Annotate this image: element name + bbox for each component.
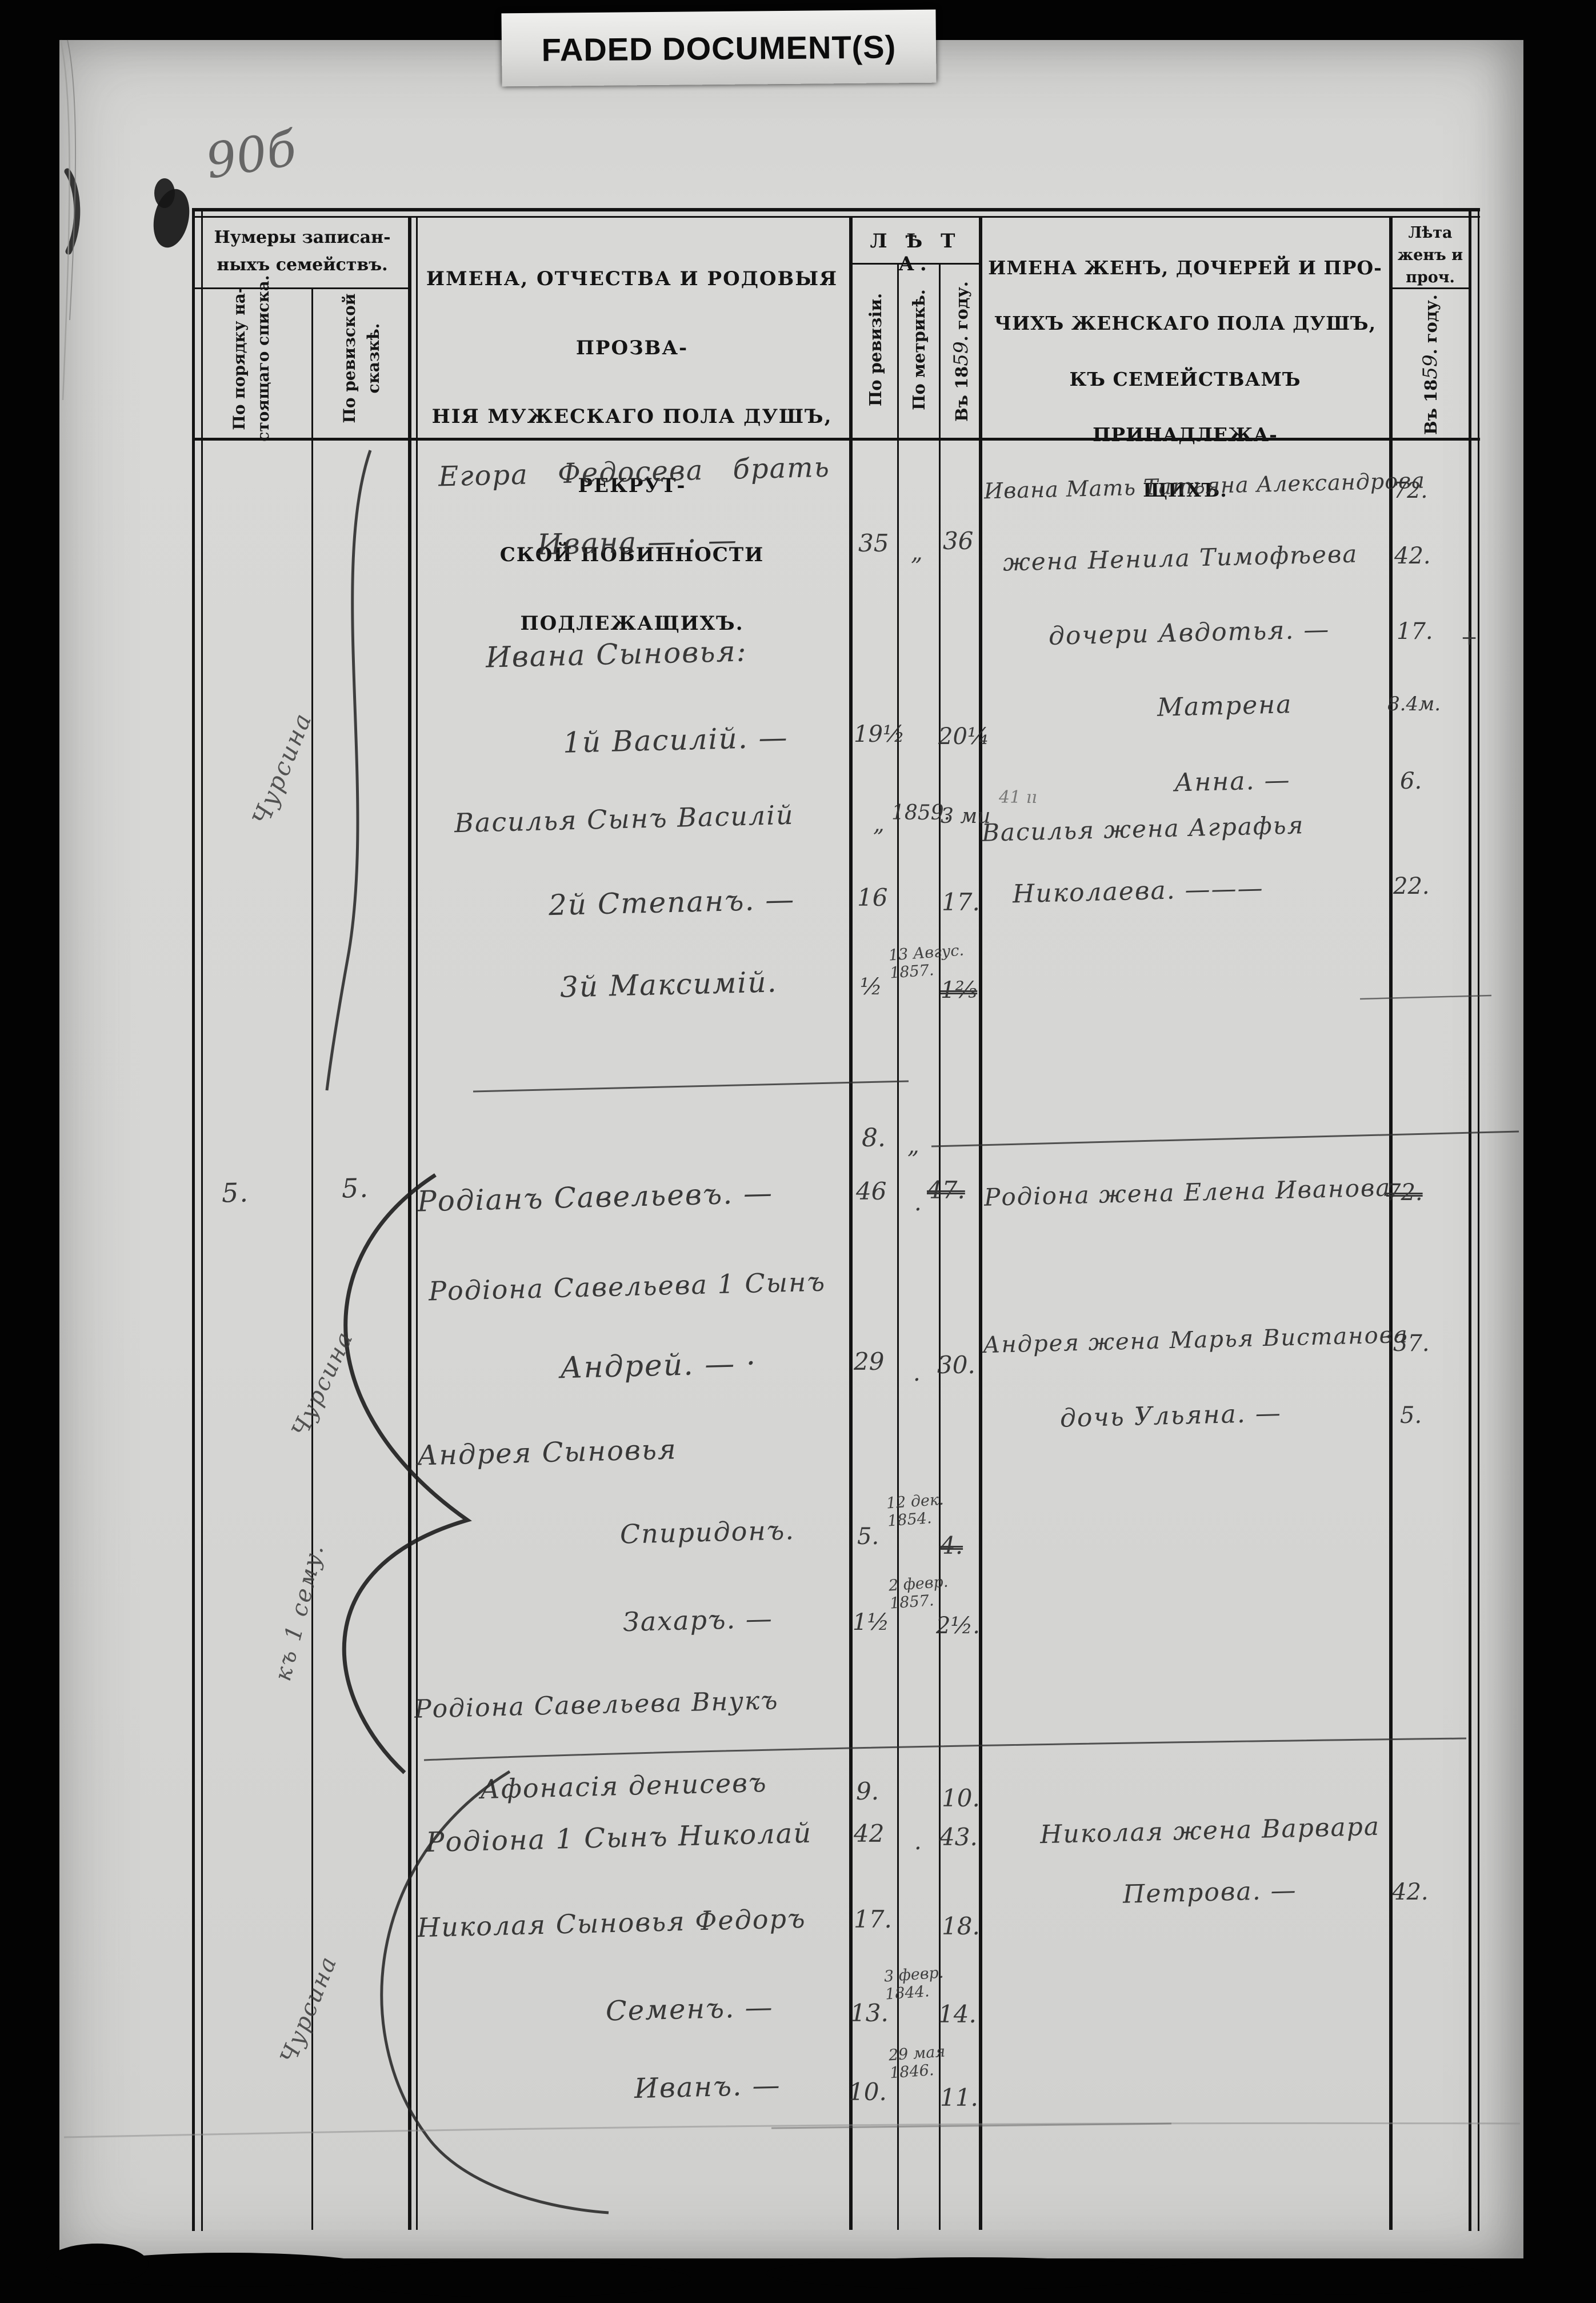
faded-document-label: FADED DOCUMENT(S) xyxy=(501,10,936,87)
age-1859-struck: 1⅔ xyxy=(941,977,977,1003)
male-entry-name: Иванъ. — xyxy=(634,2069,781,2105)
age-by-revision: 9. xyxy=(856,1777,879,1805)
grid-line xyxy=(192,216,1480,218)
female-age: 37. xyxy=(1393,1330,1430,1357)
age-by-revision: 29 xyxy=(854,1348,884,1376)
age-by-revision: ½ xyxy=(860,974,882,1000)
year-suffix: . году. xyxy=(1421,294,1441,354)
female-age: 42. xyxy=(1394,543,1431,569)
grid-line xyxy=(311,289,313,2230)
grid-line xyxy=(408,217,411,2230)
grid-line xyxy=(1389,217,1393,2230)
margin-plus-mark: + xyxy=(1461,626,1478,650)
age-by-revision: 42 xyxy=(854,1820,884,1848)
age-by-metric: „ xyxy=(911,539,923,566)
female-age: 8.4м. xyxy=(1387,693,1441,715)
age-1859: 20¼ xyxy=(938,723,990,750)
age-by-revision: 46 xyxy=(856,1177,886,1205)
age-1859: 30. xyxy=(937,1351,975,1379)
female-entry-name: Матрена xyxy=(1157,690,1293,722)
header-sub-metric: По метрикѣ. xyxy=(909,264,929,435)
faded-document-label-text: FADED DOCUMENT(S) xyxy=(541,28,896,68)
age-by-metric: . xyxy=(913,1360,921,1386)
age-1859: 2½. xyxy=(936,1613,980,1639)
age-1859: 14. xyxy=(938,2000,977,2028)
age-by-metric: . xyxy=(914,1190,922,1216)
male-entry-name: Захаръ. — xyxy=(622,1603,773,1637)
grid-line xyxy=(192,208,1480,211)
header-family-numbers: Нумеры записан- ныхъ семействъ. xyxy=(194,224,410,279)
birth-record: 12 дек. 1854. xyxy=(886,1491,946,1530)
age-1859-struck: 47. xyxy=(927,1176,965,1204)
age-1859-struck: 4. xyxy=(940,1532,963,1560)
year-prefix: Въ 18 xyxy=(1421,379,1441,435)
age-by-revision: 17. xyxy=(854,1905,892,1933)
age-by-revision: 1½ xyxy=(853,1609,889,1636)
age-by-revision: 5. xyxy=(857,1524,879,1550)
subtotal-by-revision: 8. xyxy=(862,1123,886,1153)
stray-mark: 41 ıı xyxy=(999,787,1037,807)
female-entry-name: Николаева. ——— xyxy=(1012,874,1264,909)
family2-revision-number: 5. xyxy=(341,1172,369,1204)
male-entry-name: 2й Степанъ. — xyxy=(548,883,795,922)
birth-record: 3 февр. 1844. xyxy=(883,1964,946,2003)
grid-line xyxy=(897,264,899,2230)
grid-line xyxy=(192,208,195,2231)
age-by-revision: 16 xyxy=(857,883,887,911)
female-entry-name: Петрова. — xyxy=(1122,1876,1297,1909)
age-1859: 36 xyxy=(943,527,973,555)
age-by-revision: 35 xyxy=(858,529,889,557)
female-age: 5. xyxy=(1400,1402,1422,1429)
age-1859: 17. xyxy=(942,888,980,916)
age-by-revision: 13. xyxy=(850,1999,889,2027)
male-entry-name: Андрея Сыновья xyxy=(417,1433,677,1472)
year-suffix: . году. xyxy=(952,281,971,341)
female-age: 6. xyxy=(1400,768,1422,794)
age-1859: 18. xyxy=(942,1912,980,1940)
year-handwritten: 59 xyxy=(950,341,973,366)
male-entry-name: Ивана Сыновья: xyxy=(485,634,747,674)
header-male-title: ИМЕНА, ОТЧЕСТВА И РОДОВЫЯ ПРОЗВА- НІЯ МУ… xyxy=(413,245,851,658)
male-entry-name: Андрей. — · xyxy=(559,1346,757,1385)
male-entry-name: Семенъ. — xyxy=(605,1991,774,2027)
header-female-age-year: Въ 1859. году. xyxy=(1419,279,1442,450)
year-prefix: Въ 18 xyxy=(952,366,971,422)
film-edge-right xyxy=(1523,0,1596,2303)
subtotal-by-metric: „ xyxy=(907,1133,919,1159)
microfilm-frame: FADED DOCUMENT(S) 90б Нумеры записан- ны… xyxy=(0,0,1596,2303)
header-sub-year: Въ 1859. году. xyxy=(950,266,973,437)
female-age: 72. xyxy=(1393,478,1427,503)
male-entry-name: 1й Василій. — xyxy=(562,721,789,759)
female-age: 42. xyxy=(1392,1879,1429,1905)
female-entry-name: Анна. — xyxy=(1174,766,1291,798)
female-age-struck: 72. xyxy=(1386,1180,1423,1206)
age-by-revision: 19½ xyxy=(854,721,905,747)
age-by-revision: 10. xyxy=(849,2078,887,2106)
grid-line xyxy=(1478,208,1479,2231)
grid-line xyxy=(201,208,203,2231)
grid-line xyxy=(1469,208,1471,2231)
family2-order-number: 5. xyxy=(221,1177,249,1208)
birth-record: 13 Авгус. 1857. xyxy=(888,941,966,982)
birth-record: 2 февр. 1857. xyxy=(888,1573,950,1612)
male-entry-name: 3й Максимій. xyxy=(559,965,778,1003)
male-entry-name: Спиридонъ. xyxy=(619,1514,795,1549)
film-edge-left xyxy=(0,0,59,2303)
age-1859: 11. xyxy=(940,2084,978,2112)
age-1859: 10. xyxy=(942,1784,980,1812)
year-handwritten: 59 xyxy=(1419,354,1442,379)
header-col-order: По порядку на- стоящаго списка. xyxy=(227,273,275,444)
age-1859: 43. xyxy=(939,1823,978,1851)
header-sub-revision: По ревизіи. xyxy=(866,264,885,435)
female-age: 17. xyxy=(1397,618,1433,645)
grid-line xyxy=(939,264,941,2230)
age-by-revision: „ xyxy=(873,811,885,837)
female-age: 22. xyxy=(1393,873,1430,899)
male-entry-name: Ивана — · — xyxy=(537,523,738,562)
film-edge-bottom xyxy=(0,2258,1596,2303)
female-entry-name: дочь Ульяна. — xyxy=(1059,1398,1282,1433)
age-by-metric: . xyxy=(914,1829,922,1855)
birth-record: 29 мая 1846. xyxy=(888,2043,947,2082)
header-col-revision: По ревизской сказкѣ. xyxy=(338,273,386,444)
